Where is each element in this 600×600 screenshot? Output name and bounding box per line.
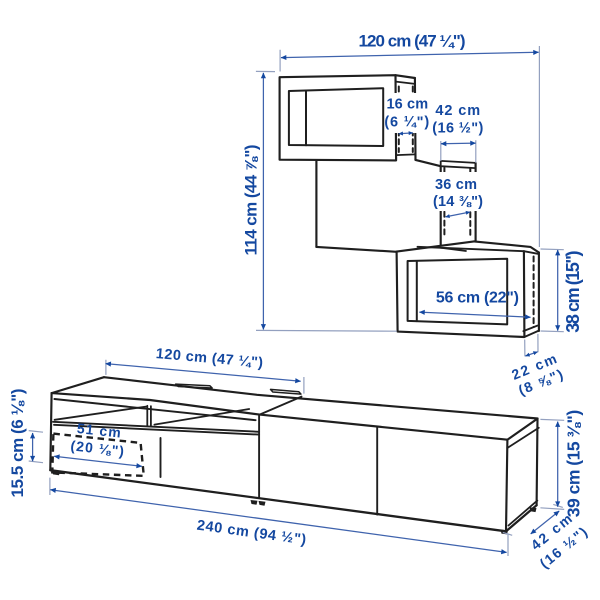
svg-text:42 cm: 42 cm — [435, 103, 480, 119]
svg-text:36 cm: 36 cm — [435, 177, 477, 193]
svg-text:56 cm (22"): 56 cm (22") — [436, 289, 519, 306]
svg-text:16 cm: 16 cm — [387, 97, 429, 113]
svg-text:15.5 cm (6 ⅛"): 15.5 cm (6 ⅛") — [8, 389, 27, 498]
svg-text:(14 ⅜"): (14 ⅜") — [433, 194, 483, 210]
svg-text:(16 ½"): (16 ½") — [432, 121, 483, 137]
svg-text:120 cm (47 ¼"): 120 cm (47 ¼") — [359, 31, 466, 50]
svg-text:(6 ¼"): (6 ¼") — [384, 114, 429, 130]
svg-text:39 cm (15 ⅜"): 39 cm (15 ⅜") — [563, 410, 583, 517]
svg-text:38 cm (15"): 38 cm (15") — [563, 250, 583, 332]
svg-text:114 cm (44 ⅞"): 114 cm (44 ⅞") — [242, 145, 261, 256]
